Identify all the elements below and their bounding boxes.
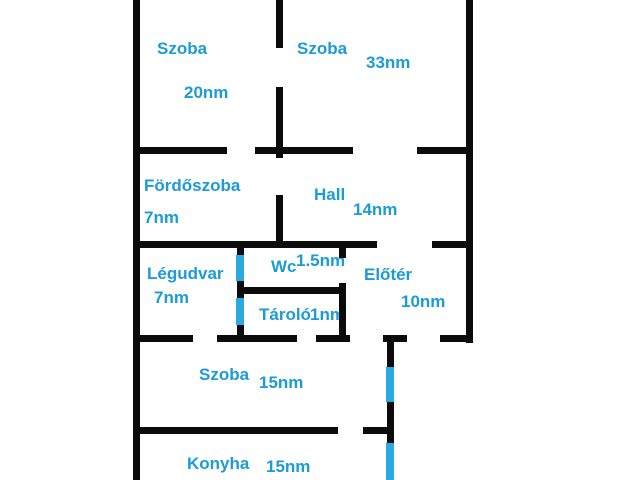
room-name-label: Tároló xyxy=(259,306,311,324)
room-area-label: 15nm xyxy=(259,374,303,392)
wall-segment xyxy=(466,0,473,343)
wall-segment xyxy=(133,147,227,154)
wall-segment xyxy=(255,147,353,154)
room-name-label: Légudvar xyxy=(147,265,224,283)
window-marker xyxy=(236,298,244,325)
wall-segment xyxy=(133,335,193,342)
room-name-label: Hall xyxy=(314,186,345,204)
window-marker xyxy=(386,443,394,480)
room-name-label: Szoba xyxy=(157,40,207,58)
wall-segment xyxy=(133,241,377,248)
room-name-label: Wc xyxy=(271,258,297,276)
room-name-label: Szoba xyxy=(199,366,249,384)
room-name-label: Konyha xyxy=(187,455,249,473)
room-area-label: 20nm xyxy=(184,84,228,102)
wall-segment xyxy=(217,335,297,342)
wall-segment xyxy=(276,0,283,48)
room-area-label: 14nm xyxy=(353,201,397,219)
room-area-label: 7nm xyxy=(144,209,179,227)
room-name-label: Fördőszoba xyxy=(144,177,240,195)
window-marker xyxy=(236,255,244,281)
room-area-label: 1.5nm xyxy=(296,252,345,270)
wall-segment xyxy=(417,147,473,154)
wall-segment xyxy=(432,241,473,248)
room-name-label: Előtér xyxy=(364,266,412,284)
room-area-label: 33nm xyxy=(366,54,410,72)
wall-segment xyxy=(237,287,346,294)
window-marker xyxy=(386,367,394,402)
wall-segment xyxy=(133,0,140,480)
room-area-label: 15nm xyxy=(266,458,310,476)
room-name-label: Szoba xyxy=(297,40,347,58)
wall-segment xyxy=(133,427,338,434)
room-area-label: 10nm xyxy=(401,293,445,311)
wall-segment xyxy=(383,335,407,342)
room-area-label: 7nm xyxy=(154,289,189,307)
wall-segment xyxy=(316,335,350,342)
wall-segment xyxy=(363,427,394,434)
floor-plan: Szoba 20nm Szoba 33nm Fördőszoba 7nm Hal… xyxy=(0,0,640,480)
wall-segment xyxy=(440,335,473,342)
